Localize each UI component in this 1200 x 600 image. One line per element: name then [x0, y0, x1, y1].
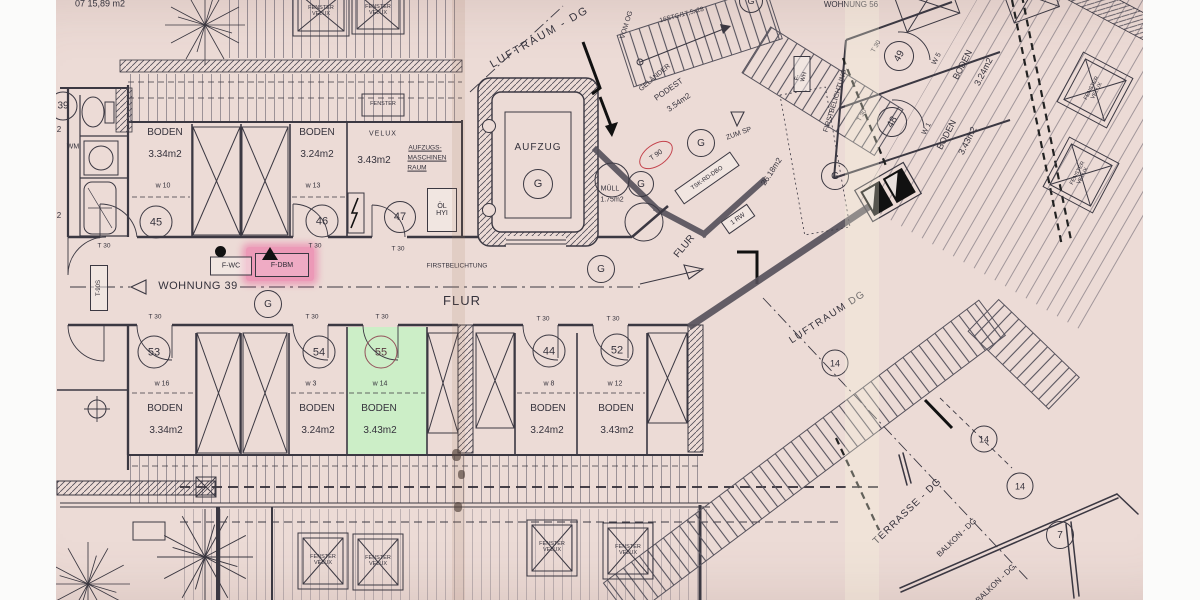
f-wc-box: F-WC [210, 257, 252, 276]
grid-point-14: 14 [822, 350, 849, 377]
oel-line1: ÖL [437, 203, 446, 210]
door-t30-label: T 30 [607, 317, 620, 324]
room-54-area: 3.24m2 [301, 426, 334, 437]
grid-point-g: G [821, 162, 849, 190]
room-55-area: 3.43m2 [363, 426, 396, 437]
grid-point-14: 14 [1007, 473, 1034, 500]
fold-smudge [452, 449, 461, 461]
room-44-unit: w 8 [544, 380, 555, 387]
t90s-label: T-90S [96, 280, 102, 296]
velux-window-label: FENSTERVELUX [365, 5, 391, 17]
room-46-unit: w 13 [306, 182, 321, 189]
room-52-circle: 52 [601, 334, 634, 367]
washing-machine-label: WM [67, 143, 79, 150]
velux-window-label: FENSTERVELUX [539, 542, 565, 554]
aufzug-label: AUFZUG [514, 143, 561, 154]
velux-window-label: FENSTERVELUX [615, 545, 641, 557]
smoke-detector-dot [215, 246, 226, 257]
firstbelichtung-label: FIRSTBELICHTUNG [427, 264, 488, 271]
grid-point-g: G [687, 129, 715, 157]
room-52-area: 3.43m2 [600, 426, 633, 437]
wohnung-39-label: WOHNUNG 39 [158, 281, 238, 293]
machine-room-line2: MASCHINEN [407, 156, 446, 163]
f-wc-label: F-WC [222, 263, 240, 270]
door-t30-label: T 30 [537, 317, 550, 324]
f-wh-label: F-WH [794, 65, 809, 83]
room-54-unit: w 3 [306, 380, 317, 387]
floorplan-sheet: 07 15,89 m2 WOHNUNG 56 BODEN 3.34m2 w 10… [0, 0, 1200, 600]
grid-point-g: G [254, 290, 282, 318]
door-t30-label: T 30 [306, 315, 319, 322]
room-53-unit: w 16 [155, 380, 170, 387]
machine-room-line1: AUFZUGS- [408, 146, 441, 153]
room-44-circle: 44 [533, 335, 566, 368]
f-wh-box: F-WH [794, 56, 811, 92]
room-55-name: BODEN [361, 404, 397, 415]
velux-window-label: FENSTERVELUX [308, 6, 334, 18]
grid-point-14: 14 [971, 426, 998, 453]
room-52-name: BODEN [598, 404, 634, 415]
muell-label: MÜLL [601, 185, 620, 192]
room-45-unit: w 10 [156, 182, 171, 189]
room-46-area: 3.24m2 [300, 150, 333, 161]
room-47-circle: 47 [384, 201, 416, 233]
room-53-name: BODEN [147, 404, 183, 415]
fold-smudge [458, 470, 465, 479]
t90s-door-box: T-90S [90, 265, 108, 311]
muell-area-label: 1.75m2 [600, 196, 623, 203]
scan-margin-right [1143, 0, 1200, 600]
door-t30-label: T 30 [392, 247, 405, 254]
room-54-circle: 54 [303, 336, 336, 369]
flur-label: FLUR [443, 294, 481, 308]
cut-area-text: 2 [57, 212, 61, 220]
room-47-fenster-label: FENSTER [370, 102, 396, 108]
grid-point-g: G [587, 255, 615, 283]
oil-hydraulic-box: ÖL HYI [427, 188, 457, 232]
grid-point-g: G [523, 169, 553, 199]
grid-point-7: 7 [1046, 521, 1074, 549]
room-46-name: BODEN [299, 128, 335, 139]
corner-area-note: 07 15,89 m2 [75, 0, 125, 9]
room-46-circle: 46 [306, 205, 339, 238]
floorplan-linework [0, 0, 1200, 600]
room-53-area: 3.34m2 [149, 426, 182, 437]
door-t30-label: T 30 [309, 244, 322, 251]
room-44-name: BODEN [530, 404, 566, 415]
grid-point-g: G [628, 171, 654, 197]
door-t30-label: T 30 [98, 244, 111, 251]
scan-margin-left [0, 0, 56, 600]
wohnung-56-label: WOHNUNG 56 [824, 1, 878, 9]
room-47-area: 3.43m2 [357, 156, 390, 167]
room-45-name: BODEN [147, 128, 183, 139]
fold-smudge [454, 502, 462, 512]
room-53-circle: 53 [138, 336, 171, 369]
room-52-unit: w 12 [608, 380, 623, 387]
room-54-name: BODEN [299, 404, 335, 415]
velux-window-label: FENSTERVELUX [365, 556, 391, 568]
room-45-circle: 45 [140, 206, 173, 239]
cut-area-text: 2 [57, 126, 61, 134]
machine-room-line3: RAUM [407, 166, 426, 173]
f-dbm-label: F-DBM [271, 262, 293, 269]
room-55-unit: w 14 [373, 380, 388, 387]
room-45-area: 3.34m2 [148, 150, 181, 161]
velux-window-label: FENSTERVELUX [310, 555, 336, 567]
oel-line2: HYI [436, 210, 448, 217]
room-55-circle: 55 [365, 336, 398, 369]
door-t30-label: T 30 [376, 315, 389, 322]
room-47-velux-label: VELUX [369, 130, 397, 137]
room-44-area: 3.24m2 [530, 426, 563, 437]
marker-triangle [262, 247, 278, 260]
door-t30-label: T 30 [149, 315, 162, 322]
t90-label: T 90 [648, 148, 663, 162]
